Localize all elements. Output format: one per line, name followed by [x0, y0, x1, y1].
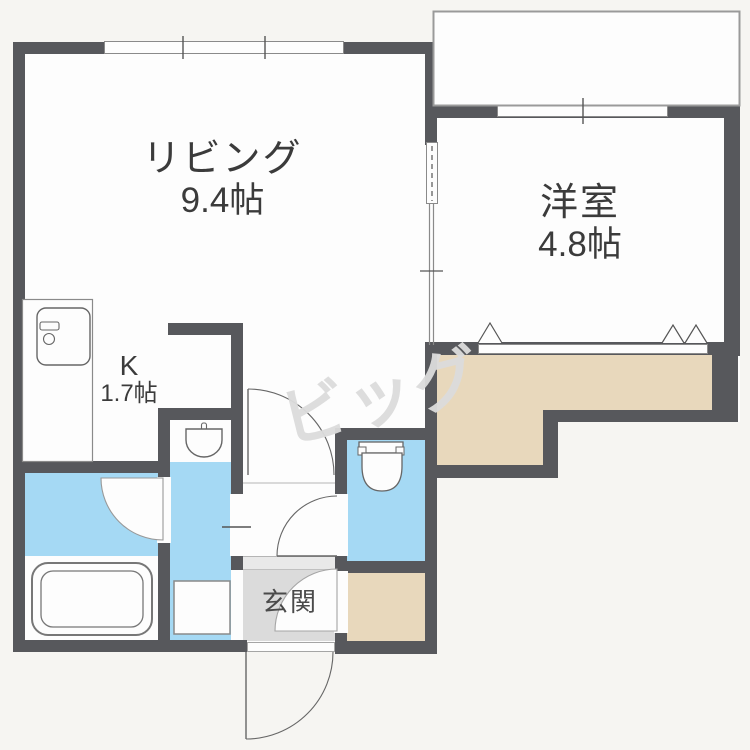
sliding-door-icon — [420, 146, 443, 345]
bath-door-swing — [101, 478, 163, 540]
balcony-outline — [434, 12, 740, 106]
western-room-name: 洋室 — [490, 182, 670, 225]
kitchen-name: K — [95, 350, 163, 381]
washing-machine-pan — [174, 581, 230, 634]
living-room-size: 9.4帖 — [120, 181, 325, 220]
entrance-door-swing — [246, 652, 333, 739]
entrance-label: 玄関 — [258, 588, 322, 617]
western-room-label: 洋室 4.8帖 — [490, 182, 670, 264]
living-room-name: リビング — [120, 138, 325, 181]
refrigerator-icon — [37, 308, 90, 365]
washroom-door-tick — [222, 483, 335, 527]
toilet-door-swing — [277, 496, 337, 556]
western-room-size: 4.8帖 — [490, 225, 670, 264]
hall-door-swing — [248, 389, 334, 475]
living-room-label: リビング 9.4帖 — [120, 138, 325, 220]
kitchen-label: K 1.7帖 — [95, 350, 163, 408]
floor-plan: リビング 9.4帖 洋室 4.8帖 K 1.7帖 玄関 ビッグ — [0, 0, 750, 750]
washbasin-icon — [186, 423, 222, 457]
toilet-icon — [358, 442, 404, 491]
bathtub-icon — [32, 563, 152, 635]
kitchen-size: 1.7帖 — [95, 381, 163, 408]
closet-fold-marks — [478, 323, 707, 343]
